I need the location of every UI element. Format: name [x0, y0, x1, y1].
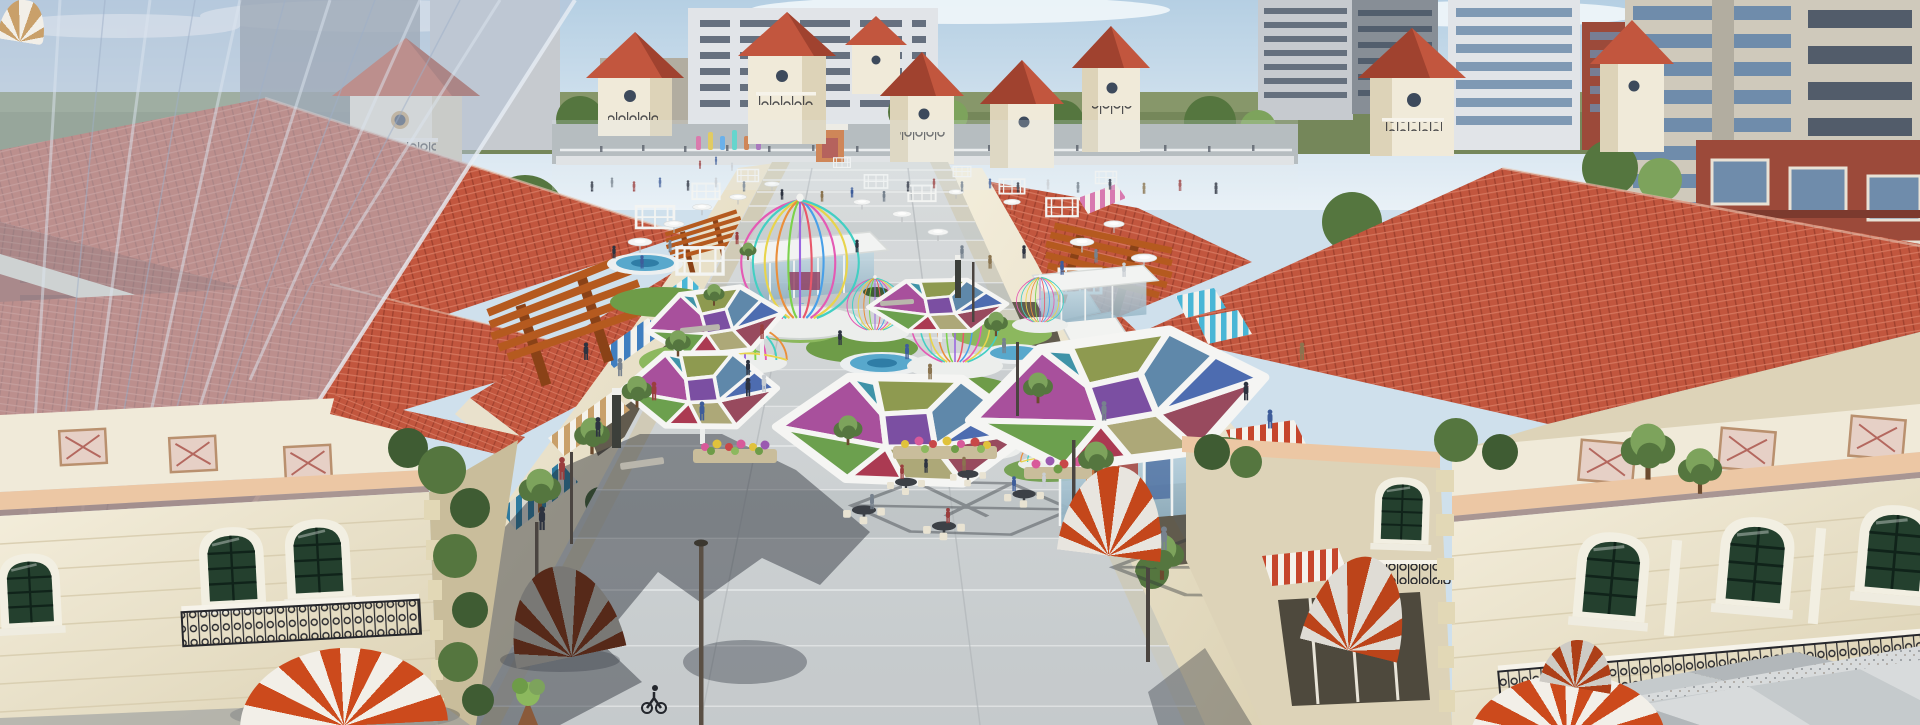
arched-window — [280, 517, 356, 606]
arched-window — [1370, 476, 1433, 551]
scene-svg — [0, 0, 1920, 725]
glass-pavilion-right — [1033, 265, 1159, 325]
pool — [607, 253, 683, 275]
distance-haze — [552, 120, 1298, 190]
arched-window-partial — [0, 552, 66, 636]
architectural-render — [0, 0, 1920, 725]
arched-window — [194, 525, 270, 614]
